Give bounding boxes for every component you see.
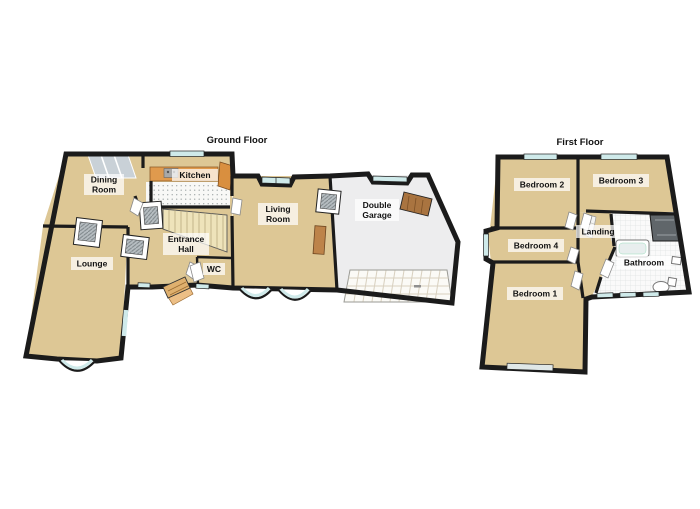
label-bedroom2: Bedroom 2	[514, 178, 570, 191]
label-entrance-hall: Entrance Hall	[163, 233, 209, 255]
label-bathroom: Bathroom	[617, 256, 671, 269]
svg-text:Bedroom 3: Bedroom 3	[599, 176, 644, 186]
living-room-sideboard	[313, 226, 326, 255]
svg-text:Garage: Garage	[362, 210, 392, 220]
svg-text:Hall: Hall	[178, 244, 194, 254]
svg-text:Landing: Landing	[581, 227, 614, 237]
svg-text:Lounge: Lounge	[77, 259, 108, 269]
kitchen-window	[170, 151, 204, 157]
bedroom1-floor	[483, 262, 585, 370]
bedroom4-window	[484, 234, 489, 256]
bedroom2-window	[524, 154, 557, 160]
svg-text:Room: Room	[92, 185, 117, 195]
bedroom3-window	[601, 154, 637, 160]
floorplan-page: Ground Floor Dining Room Kitchen Entranc…	[0, 0, 700, 509]
label-living-room: Living Room	[258, 203, 298, 225]
label-dining-room: Dining Room	[84, 174, 124, 195]
basin	[671, 256, 681, 264]
first-floor-plan: First Floor Bedroom 2 Bedroom 3 Bedroom …	[482, 137, 689, 372]
ground-floor-title: Ground Floor	[207, 135, 268, 146]
floorplan-image: Ground Floor Dining Room Kitchen Entranc…	[0, 0, 700, 509]
first-floor-title: First Floor	[557, 137, 604, 148]
label-landing: Landing	[576, 225, 620, 238]
hall-window-right	[196, 284, 209, 289]
label-lounge: Lounge	[71, 257, 113, 270]
svg-text:Double: Double	[363, 200, 392, 210]
hall-window-left	[138, 283, 150, 288]
garage-door-handle	[414, 285, 421, 288]
label-bedroom3: Bedroom 3	[593, 174, 649, 187]
label-bedroom4: Bedroom 4	[508, 239, 564, 252]
lounge-floor	[26, 226, 128, 361]
chimney-breast-living	[316, 189, 341, 214]
svg-text:Kitchen: Kitchen	[179, 170, 210, 180]
svg-text:Room: Room	[266, 214, 291, 224]
ground-floor-plan: Ground Floor Dining Room Kitchen Entranc…	[26, 135, 458, 371]
bathroom-windows	[597, 292, 659, 298]
bedroom2-floor	[490, 157, 578, 228]
svg-text:Bathroom: Bathroom	[624, 258, 665, 268]
living-room-door-leaf	[231, 198, 242, 215]
living-room-bay-window	[238, 287, 273, 298]
lounge-side-window	[124, 310, 126, 336]
living-room-bay-window-2	[277, 288, 312, 300]
svg-text:Living: Living	[265, 204, 290, 214]
label-bedroom1: Bedroom 1	[507, 287, 563, 300]
label-kitchen: Kitchen	[172, 169, 218, 181]
chimney-breast-lounge-2	[121, 234, 149, 259]
svg-text:Dining: Dining	[91, 175, 117, 185]
lounge-bay-window	[58, 359, 96, 371]
svg-text:Bedroom 2: Bedroom 2	[520, 180, 565, 190]
svg-text:Bedroom 1: Bedroom 1	[513, 289, 558, 299]
garage-window	[373, 176, 407, 182]
svg-text:Entrance: Entrance	[168, 234, 205, 244]
chimney-breast-hall	[139, 201, 163, 229]
label-double-garage: Double Garage	[355, 199, 399, 221]
svg-text:WC: WC	[207, 264, 221, 274]
bedroom1-window	[507, 363, 553, 371]
label-wc: WC	[203, 263, 225, 275]
bathtub	[616, 240, 649, 257]
chimney-breast-lounge	[73, 218, 102, 248]
living-room-top-window	[262, 177, 290, 184]
svg-text:Bedroom 4: Bedroom 4	[514, 241, 559, 251]
